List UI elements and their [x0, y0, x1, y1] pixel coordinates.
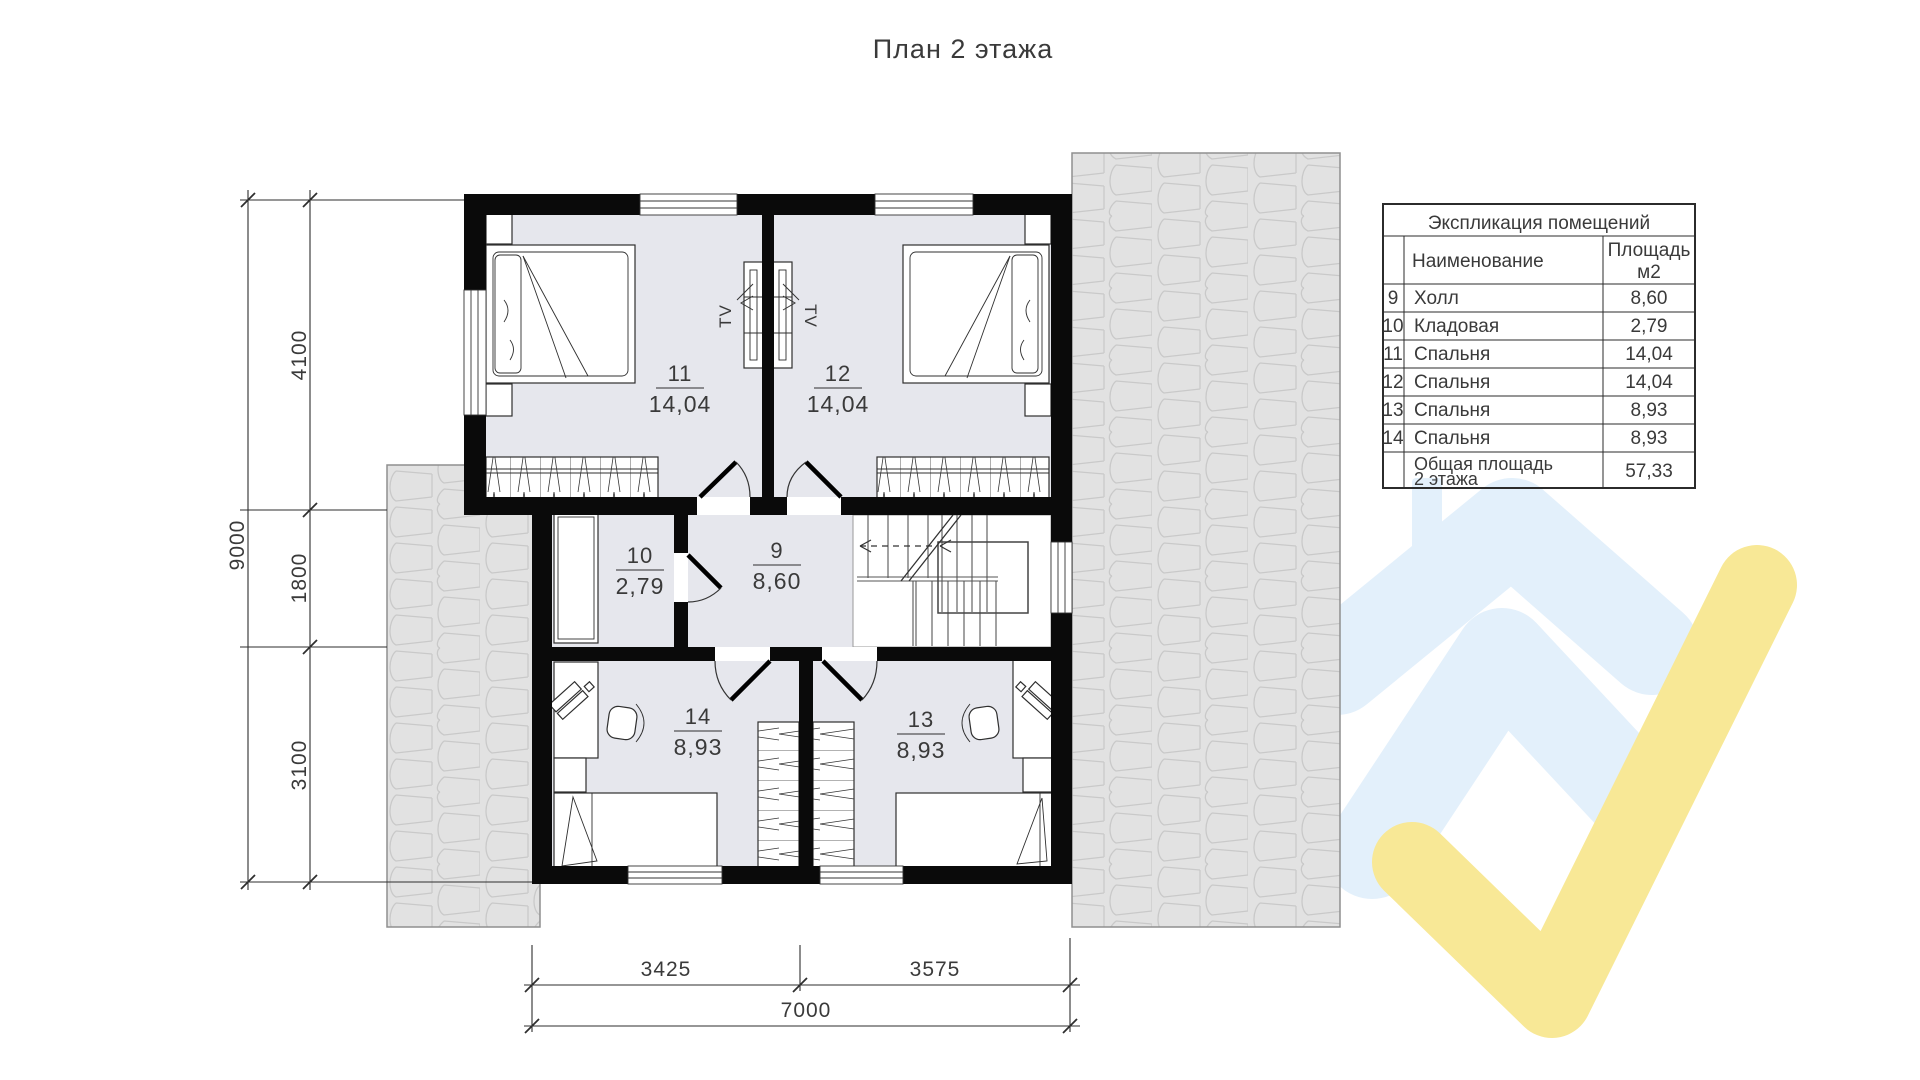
dim-3425: 3425	[641, 958, 692, 981]
double-bed	[486, 245, 635, 383]
nightstand	[486, 384, 512, 416]
row-name: Спальня	[1414, 428, 1490, 449]
tv-cabinet	[772, 262, 792, 368]
dim-9000: 9000	[226, 520, 249, 571]
row-name: Холл	[1414, 288, 1459, 309]
nightstand	[1023, 758, 1055, 792]
row-num: 12	[1382, 372, 1403, 393]
row-num: 14	[1382, 428, 1404, 449]
total-name-line2: 2 этажа	[1414, 469, 1479, 489]
nightstand	[1025, 384, 1051, 416]
window-room-13-bottom	[820, 866, 903, 884]
nightstand	[486, 212, 512, 244]
window-room-12-top	[875, 194, 973, 215]
wardrobe	[758, 722, 799, 868]
nightstand	[554, 758, 586, 792]
wall-top	[464, 194, 1072, 215]
partition-14-13	[799, 661, 813, 866]
tv-cabinet	[744, 262, 764, 368]
total-area: 57,33	[1625, 461, 1673, 482]
room-number: 10	[627, 543, 653, 568]
window-stair-right	[1051, 542, 1072, 613]
legend-col-area: Площадь	[1608, 240, 1691, 261]
wall-mid-lower	[532, 647, 1072, 661]
roof-right-texture	[1072, 153, 1340, 927]
partition-11-12	[762, 215, 774, 497]
storage-shelf	[554, 513, 598, 643]
nightstand	[1025, 212, 1051, 244]
tv-label-room-11: TV	[716, 304, 735, 328]
row-num: 11	[1383, 344, 1403, 365]
legend-col-area-unit: м2	[1637, 262, 1661, 283]
dim-3100: 3100	[288, 740, 311, 791]
room-area: 14,04	[649, 391, 712, 417]
room-area: 14,04	[807, 391, 870, 417]
row-area: 8,93	[1631, 400, 1668, 421]
dim-1800: 1800	[288, 553, 311, 604]
watermark-chimney-icon	[1412, 478, 1442, 566]
row-area: 14,04	[1625, 372, 1673, 393]
floor-plan-sheet: 11 14,04 12 14,04 10 2,79 9 8,60 14 8,93…	[0, 0, 1920, 1080]
row-area: 8,60	[1631, 288, 1668, 309]
wall-bottom	[532, 866, 1072, 884]
row-area: 8,93	[1631, 428, 1668, 449]
wardrobe	[813, 722, 854, 868]
room-area: 2,79	[616, 573, 665, 599]
dim-4100: 4100	[288, 330, 311, 381]
room-number: 11	[668, 361, 693, 386]
room-area: 8,93	[674, 734, 723, 760]
wardrobe	[877, 457, 1049, 498]
row-num: 13	[1382, 400, 1403, 421]
room-number: 12	[825, 361, 851, 386]
double-bed	[903, 245, 1049, 383]
floor-plan-drawing: 11 14,04 12 14,04 10 2,79 9 8,60 14 8,93…	[0, 0, 1920, 1080]
row-name: Спальня	[1414, 344, 1490, 365]
roof-left-texture	[387, 465, 540, 927]
room-number: 13	[908, 707, 934, 732]
legend-col-name: Наименование	[1412, 251, 1544, 272]
legend-title: Экспликация помещений	[1428, 213, 1650, 234]
wall-right	[1051, 194, 1072, 884]
roof-right	[1072, 153, 1340, 927]
window-room-14-bottom	[628, 866, 722, 884]
row-num: 10	[1382, 316, 1403, 337]
room-10-furniture	[554, 513, 598, 643]
row-area: 2,79	[1631, 316, 1668, 337]
wall-mid-upper	[464, 497, 1072, 515]
roof-left	[387, 465, 540, 927]
wardrobe	[486, 457, 658, 498]
room-area: 8,60	[753, 568, 802, 594]
room-number: 9	[770, 538, 783, 563]
row-name: Спальня	[1414, 400, 1490, 421]
staircase	[853, 515, 1051, 647]
row-area: 14,04	[1625, 344, 1673, 365]
single-bed	[896, 793, 1059, 868]
tv-label-room-12: TV	[801, 304, 820, 328]
row-name: Кладовая	[1414, 316, 1499, 337]
window-room-11-left	[464, 290, 486, 415]
row-name: Спальня	[1414, 372, 1490, 393]
dim-7000: 7000	[781, 999, 832, 1022]
row-num: 9	[1388, 288, 1399, 309]
single-bed	[554, 793, 717, 868]
wall-left-lower	[532, 497, 552, 884]
room-number: 14	[685, 704, 711, 729]
window-room-11-top	[640, 194, 737, 215]
page-title: План 2 этажа	[873, 34, 1053, 64]
room-area: 8,93	[897, 737, 946, 763]
dim-3575: 3575	[910, 958, 961, 981]
